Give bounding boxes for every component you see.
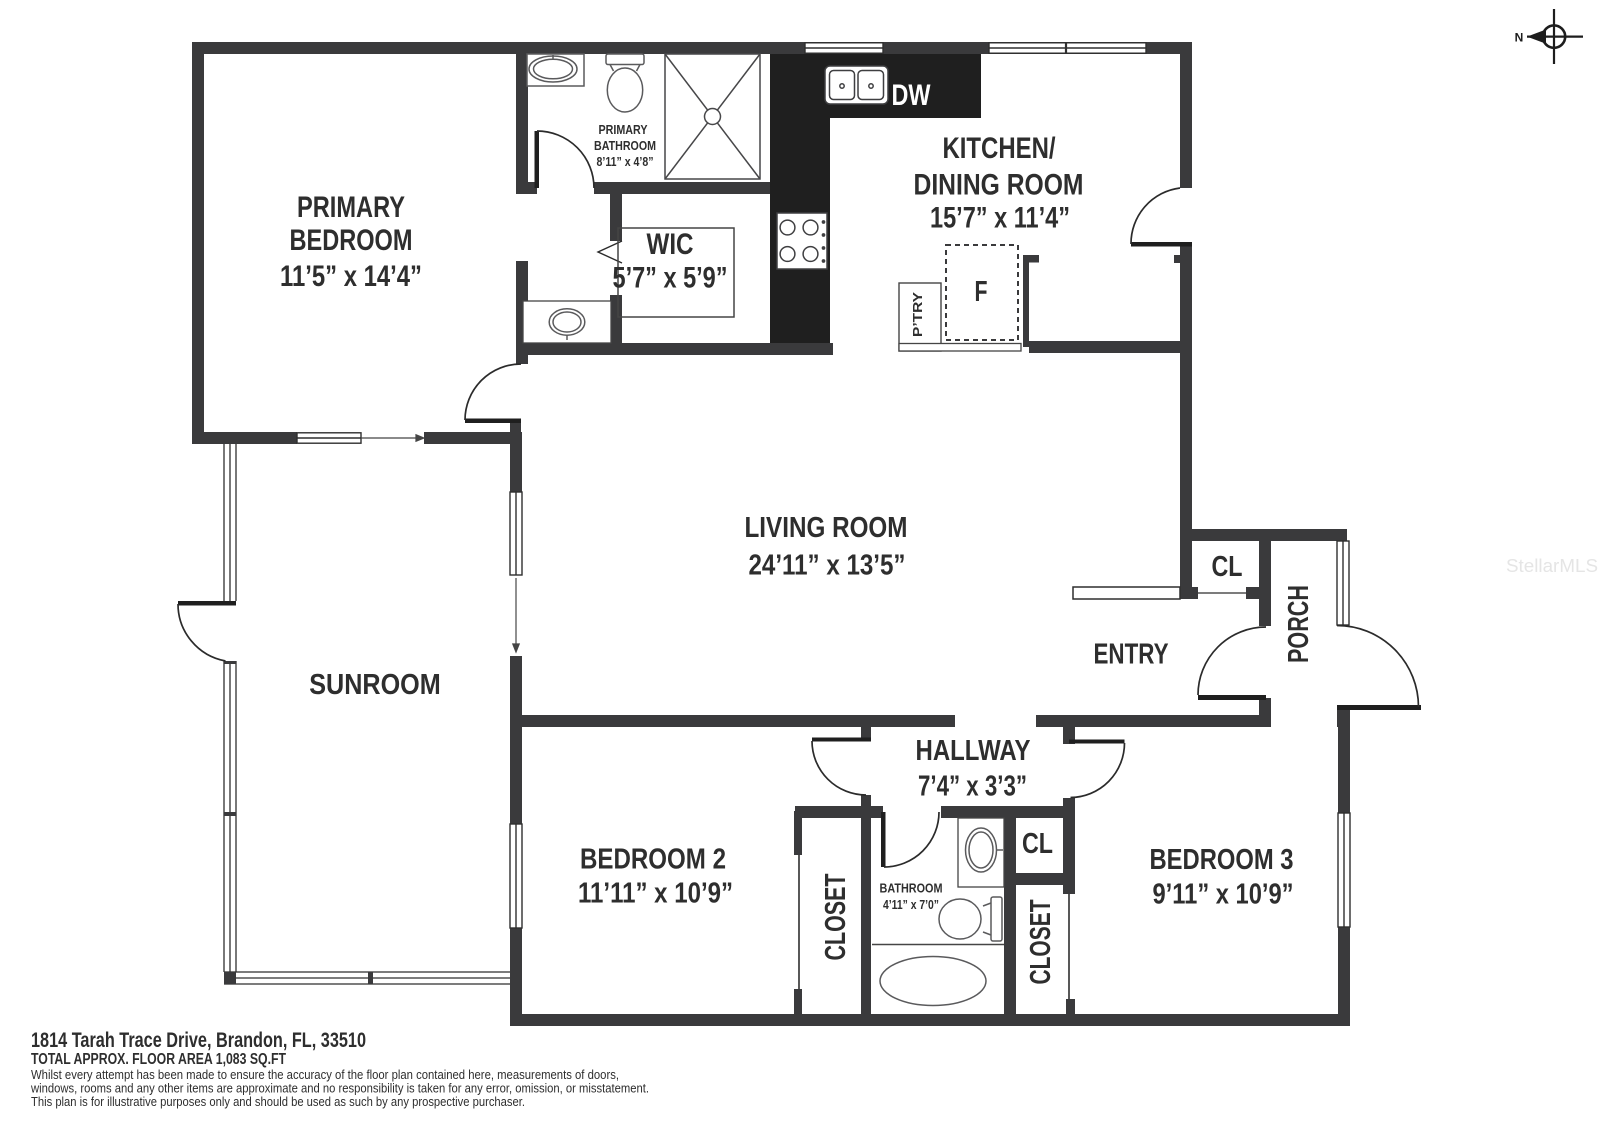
svg-text:PRIMARY: PRIMARY — [599, 123, 649, 137]
svg-text:P’TRY: P’TRY — [911, 291, 925, 337]
svg-text:8’11” x 4’8”: 8’11” x 4’8” — [597, 155, 654, 169]
svg-text:LIVING ROOM: LIVING ROOM — [745, 512, 908, 544]
svg-text:StellarMLS: StellarMLS — [1506, 556, 1598, 576]
svg-text:PRIMARY: PRIMARY — [297, 191, 405, 224]
svg-text:This plan is for illustrative: This plan is for illustrative purposes o… — [31, 1095, 525, 1109]
svg-text:CL: CL — [1212, 551, 1243, 583]
svg-text:F: F — [975, 276, 988, 308]
svg-text:HALLWAY: HALLWAY — [916, 735, 1031, 767]
svg-text:windows, rooms and any other i: windows, rooms and any other items are a… — [30, 1082, 649, 1096]
svg-text:CL: CL — [1022, 828, 1053, 860]
svg-text:BEDROOM: BEDROOM — [290, 224, 413, 257]
svg-text:SUNROOM: SUNROOM — [309, 669, 441, 701]
svg-text:DW: DW — [892, 79, 932, 112]
svg-text:11’11” x 10’9”: 11’11” x 10’9” — [578, 878, 733, 910]
svg-text:11’5” x 14’4”: 11’5” x 14’4” — [280, 260, 422, 293]
svg-text:BATHROOM: BATHROOM — [880, 882, 943, 896]
svg-text:ENTRY: ENTRY — [1094, 639, 1169, 671]
svg-text:CLOSET: CLOSET — [1025, 899, 1057, 984]
svg-text:N: N — [1515, 31, 1524, 45]
svg-text:KITCHEN/: KITCHEN/ — [943, 132, 1057, 165]
svg-text:1814 Tarah Trace Drive, Brando: 1814 Tarah Trace Drive, Brandon, FL, 335… — [31, 1029, 366, 1052]
svg-text:5’7” x 5’9”: 5’7” x 5’9” — [613, 262, 728, 295]
svg-text:15’7” x 11’4”: 15’7” x 11’4” — [930, 202, 1070, 235]
svg-text:TOTAL APPROX. FLOOR AREA 1,083: TOTAL APPROX. FLOOR AREA 1,083 SQ.FT — [31, 1051, 286, 1068]
svg-text:BATHROOM: BATHROOM — [594, 139, 656, 153]
svg-text:BEDROOM 2: BEDROOM 2 — [580, 844, 726, 876]
svg-text:24’11” x 13’5”: 24’11” x 13’5” — [749, 550, 906, 582]
svg-text:WIC: WIC — [647, 228, 694, 261]
svg-text:7’4” x 3’3”: 7’4” x 3’3” — [918, 771, 1027, 803]
svg-text:Whilst every attempt has been: Whilst every attempt has been made to en… — [31, 1068, 619, 1082]
svg-text:PORCH: PORCH — [1283, 585, 1315, 663]
svg-text:CLOSET: CLOSET — [820, 873, 852, 960]
svg-text:BEDROOM 3: BEDROOM 3 — [1150, 844, 1294, 876]
svg-text:9’11” x 10’9”: 9’11” x 10’9” — [1153, 879, 1294, 911]
svg-text:DINING ROOM: DINING ROOM — [914, 169, 1084, 202]
svg-text:4’11” x 7’0”: 4’11” x 7’0” — [883, 898, 939, 912]
